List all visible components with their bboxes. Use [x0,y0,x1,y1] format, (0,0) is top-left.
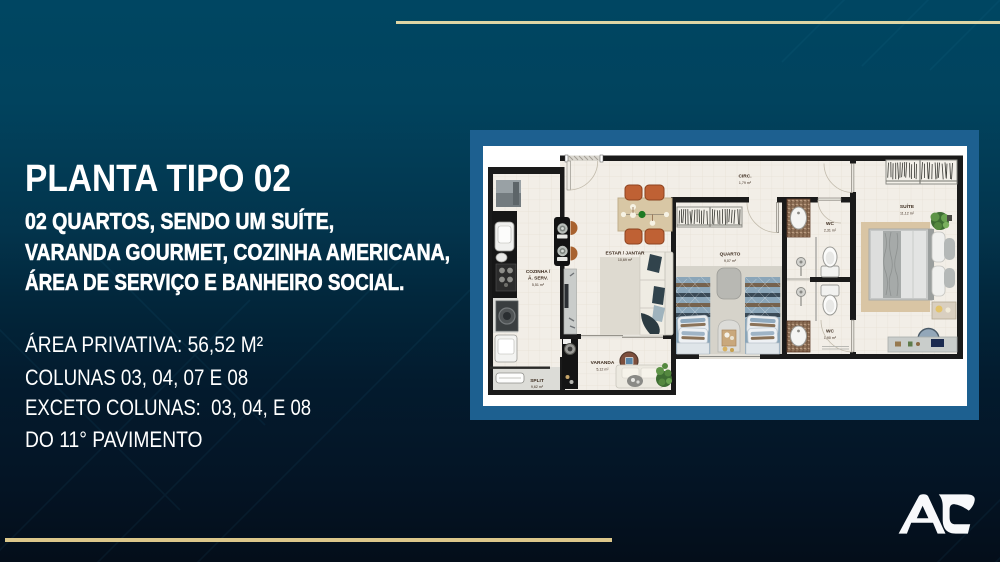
svg-text:ESTAR / JANTAR: ESTAR / JANTAR [606,251,646,257]
svg-text:9,07 m²: 9,07 m² [724,259,737,263]
svg-text:QUARTO: QUARTO [720,252,741,258]
svg-text:WC: WC [826,329,835,335]
svg-text:VARANDA: VARANDA [591,360,615,366]
svg-text:Á. SERV.: Á. SERV. [528,275,548,282]
svg-text:9,62 m²: 9,62 m² [531,385,544,389]
svg-text:1,90 m²: 1,90 m² [824,336,837,340]
svg-text:5,12 m²: 5,12 m² [596,368,609,372]
svg-text:1,79 m²: 1,79 m² [739,181,752,185]
svg-text:SPLIT: SPLIT [530,378,544,384]
svg-text:WC: WC [826,221,835,227]
svg-text:COZINHA /: COZINHA / [526,269,551,275]
svg-text:11,12 m²: 11,12 m² [900,212,915,216]
svg-text:2,31 m²: 2,31 m² [824,229,837,233]
svg-text:5,51 m²: 5,51 m² [532,283,545,287]
svg-text:CIRC.: CIRC. [738,174,751,180]
svg-text:10,69 m²: 10,69 m² [618,258,633,262]
